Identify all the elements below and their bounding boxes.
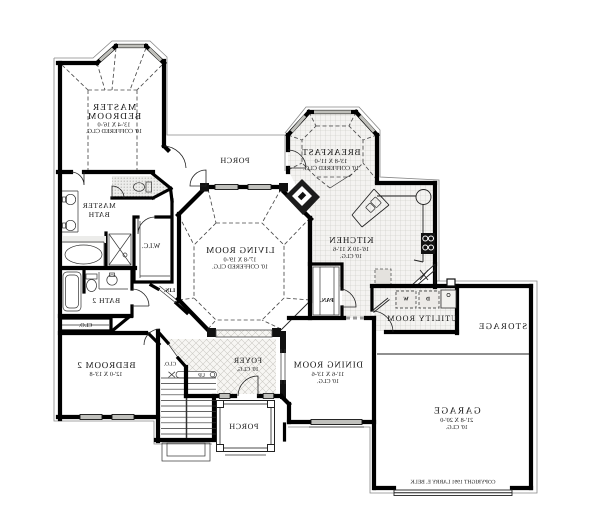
svg-text:PORCH: PORCH [220, 156, 250, 165]
svg-text:FOYER: FOYER [233, 356, 262, 365]
svg-text:UTILITY ROOM: UTILITY ROOM [386, 314, 457, 323]
svg-text:LIN.: LIN. [163, 288, 175, 294]
svg-text:BEDROOM: BEDROOM [87, 111, 141, 121]
svg-text:10' CLG.: 10' CLG. [316, 379, 339, 385]
svg-text:DINING ROOM: DINING ROOM [293, 360, 363, 370]
svg-text:CLO.: CLO. [163, 362, 176, 368]
svg-text:MASTER: MASTER [82, 201, 115, 210]
svg-text:BATH: BATH [88, 210, 110, 219]
svg-text:17'-8 X 19'-0: 17'-8 X 19'-0 [223, 257, 256, 264]
svg-text:11'-6 X 13'-6: 11'-6 X 13'-6 [312, 371, 345, 378]
svg-text:10' CLG.: 10' CLG. [445, 425, 468, 431]
svg-text:UP: UP [198, 373, 205, 379]
svg-text:BEDROOM 2: BEDROOM 2 [77, 360, 136, 370]
svg-text:10' COFFERED CLG.: 10' COFFERED CLG. [86, 128, 142, 135]
svg-text:W.I.C.: W.I.C. [142, 242, 160, 250]
svg-text:21'-8 X 20'-0: 21'-8 X 20'-0 [440, 417, 473, 424]
svg-text:12'-0 X 13'-8: 12'-0 X 13'-8 [89, 371, 122, 378]
svg-text:10' COFFERED CLG.: 10' COFFERED CLG. [212, 264, 268, 271]
svg-text:D: D [426, 297, 430, 303]
svg-text:CLO.: CLO. [78, 323, 92, 329]
svg-text:PAN.: PAN. [320, 298, 334, 304]
svg-text:10' CLG.: 10' CLG. [236, 367, 259, 373]
svg-text:STORAGE: STORAGE [478, 321, 528, 331]
svg-text:10' COFFERED CLG.: 10' COFFERED CLG. [303, 165, 359, 172]
svg-text:BATH 2: BATH 2 [92, 296, 120, 305]
svg-text:W: W [403, 297, 409, 303]
svg-text:COPYRIGHT 1991 LARRY E. BELK: COPYRIGHT 1991 LARRY E. BELK [410, 480, 495, 486]
svg-text:16'-10 X 11'-6: 16'-10 X 11'-6 [333, 246, 369, 253]
svg-text:GARAGE: GARAGE [433, 407, 481, 417]
svg-text:10' CLG.: 10' CLG. [339, 254, 362, 260]
svg-text:KITCHEN: KITCHEN [328, 235, 373, 245]
svg-text:LIVING ROOM: LIVING ROOM [205, 245, 274, 255]
svg-text:13'-8 X 11'-0: 13'-8 X 11'-0 [315, 158, 348, 165]
svg-text:BREAKFAST: BREAKFAST [301, 147, 360, 157]
svg-text:PORCH: PORCH [229, 422, 259, 431]
